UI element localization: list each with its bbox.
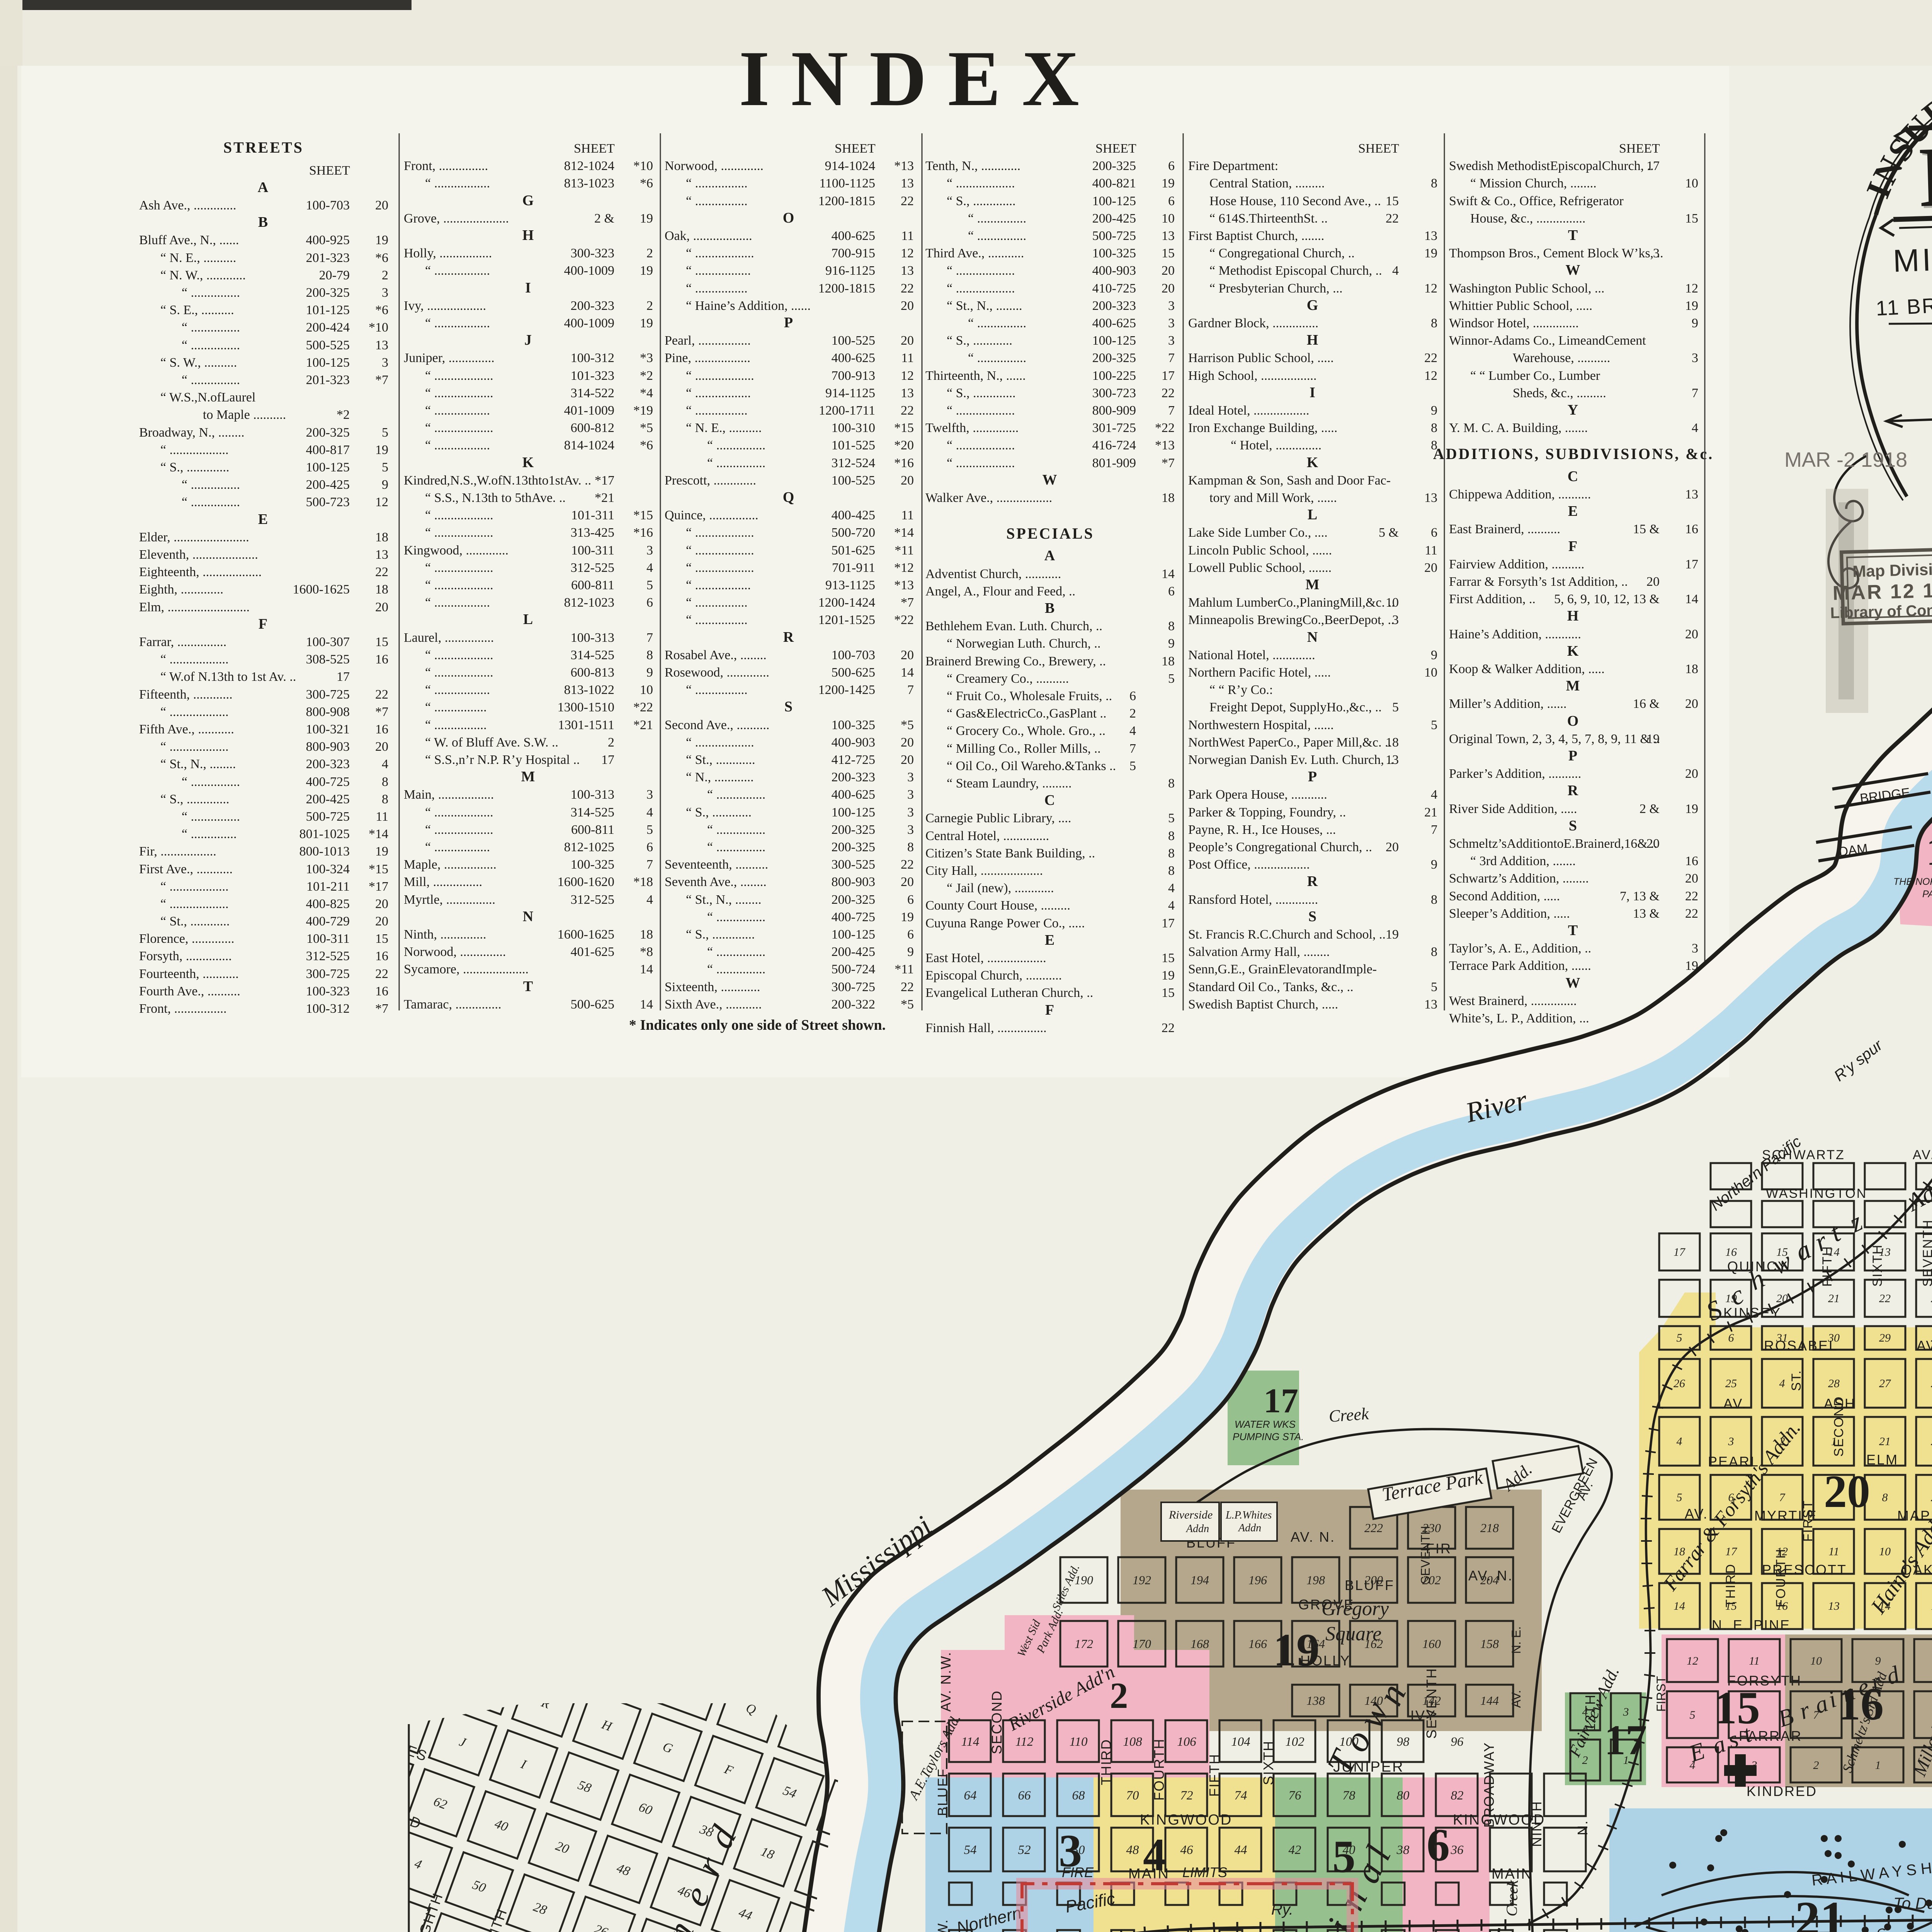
svg-text:13: 13 (1828, 1600, 1840, 1612)
svg-text:WASHINGTON: WASHINGTON (1766, 1186, 1867, 1201)
svg-text:21: 21 (1828, 1292, 1840, 1305)
svg-text:MAIN: MAIN (1492, 1866, 1533, 1882)
svg-text:“ S. E., ..........: “ S. E., .......... (160, 303, 234, 317)
svg-text:“ S., .............: “ S., ............. (160, 460, 230, 474)
svg-text:162: 162 (1364, 1637, 1383, 1651)
svg-text:Fourth Ave., ..........: Fourth Ave., .......... (139, 984, 240, 998)
svg-text:Mill, ...............: Mill, ............... (404, 875, 482, 889)
svg-text:202: 202 (1422, 1573, 1441, 1587)
svg-text:501-625: 501-625 (832, 543, 875, 558)
svg-text:15: 15 (1162, 951, 1175, 965)
svg-text:Thirteenth, N., ......: Thirteenth, N., ...... (925, 369, 1026, 383)
svg-text:300-323: 300-323 (571, 246, 614, 260)
svg-text:28: 28 (1828, 1377, 1840, 1390)
svg-text:100-321: 100-321 (306, 722, 350, 736)
svg-text:11: 11 (901, 508, 914, 522)
svg-text:160: 160 (1422, 1637, 1441, 1651)
svg-text:100-325: 100-325 (571, 857, 614, 872)
svg-text:17: 17 (1685, 557, 1698, 571)
svg-text:13: 13 (901, 264, 914, 278)
svg-text:FIFTH: FIFTH (1206, 1753, 1222, 1797)
svg-text:400-825: 400-825 (306, 897, 350, 911)
svg-text:4: 4 (646, 561, 653, 575)
svg-text:22: 22 (901, 980, 914, 994)
svg-text:SECOND: SECOND (989, 1690, 1005, 1754)
svg-text:“ ..................: “ .................. (425, 369, 493, 383)
svg-text:82: 82 (1451, 1789, 1464, 1803)
svg-text:*7: *7 (1162, 456, 1175, 470)
svg-text:I: I (1310, 384, 1316, 401)
svg-text:*18: *18 (633, 875, 653, 889)
svg-text:THIRD: THIRD (1098, 1739, 1114, 1785)
svg-text:“ ...............: “ ............... (182, 286, 240, 300)
svg-text:100-125: 100-125 (1092, 194, 1136, 208)
svg-text:Parker & Topping, Foundry, ..: Parker & Topping, Foundry, .. (1188, 805, 1346, 820)
svg-text:914-1125: 914-1125 (825, 386, 875, 400)
svg-text:Second Addition, .....: Second Addition, ..... (1449, 889, 1560, 903)
svg-text:200-323: 200-323 (571, 299, 614, 313)
svg-text:SIXTH: SIXTH (1870, 1244, 1885, 1287)
svg-text:112: 112 (1015, 1735, 1033, 1749)
svg-text:SHEET: SHEET (1095, 141, 1136, 156)
svg-text:Hose House, 110 Second Ave., .: Hose House, 110 Second Ave., .. (1209, 194, 1381, 208)
svg-text:400-725: 400-725 (832, 910, 875, 924)
svg-text:204: 204 (1480, 1573, 1499, 1587)
svg-text:5: 5 (1168, 672, 1175, 686)
svg-text:7, 13 &: 7, 13 & (1620, 889, 1660, 903)
svg-text:4: 4 (646, 805, 653, 820)
svg-text:“ ...............: “ ............... (182, 478, 240, 492)
svg-text:313-425: 313-425 (571, 526, 614, 540)
svg-text:“ ................: “ ................ (686, 403, 748, 418)
svg-text:SHEET: SHEET (835, 141, 876, 156)
svg-text:B: B (258, 214, 269, 230)
svg-text:1301-1511: 1301-1511 (558, 718, 614, 732)
svg-text:15: 15 (375, 635, 388, 649)
svg-text:NINTH: NINTH (1529, 1801, 1544, 1847)
svg-text:Sleeper’s Addition, .....: Sleeper’s Addition, ..... (1449, 906, 1570, 921)
svg-text:4: 4 (1168, 898, 1175, 913)
svg-text:Terrace Park Addition, ......: Terrace Park Addition, ...... (1449, 959, 1591, 973)
svg-text:“ ................: “ ................ (425, 718, 487, 732)
svg-text:15: 15 (1162, 986, 1175, 1000)
svg-text:3: 3 (907, 787, 914, 802)
svg-text:AV. N.W.: AV. N.W. (938, 1651, 954, 1712)
svg-text:Kingwood, .............: Kingwood, ............. (404, 543, 509, 558)
svg-text:“ ..................: “ .................. (947, 281, 1015, 296)
svg-text:12: 12 (901, 246, 914, 260)
svg-text:WATER WKS: WATER WKS (1235, 1418, 1296, 1430)
svg-text:“ W.S.,N.ofLaurel: “ W.S.,N.ofLaurel (160, 390, 255, 405)
svg-text:1600-1620: 1600-1620 (558, 875, 614, 889)
svg-text:Eleventh, ....................: Eleventh, .................... (139, 548, 258, 562)
svg-text:Central Station, .........: Central Station, ......... (1209, 176, 1325, 190)
svg-text:R: R (1568, 782, 1579, 799)
svg-text:Prescott, .............: Prescott, ............. (665, 473, 756, 488)
svg-text:106: 106 (1177, 1735, 1196, 1749)
svg-text:5: 5 (1332, 1831, 1355, 1882)
svg-text:200-425: 200-425 (306, 792, 350, 806)
svg-text:813-1022: 813-1022 (564, 683, 614, 697)
svg-text:10: 10 (640, 683, 653, 697)
svg-text:813-1023: 813-1023 (564, 176, 614, 190)
svg-text:*3: *3 (640, 351, 653, 365)
svg-text:“ S.S., N.13th to 5thAve. ..: “ S.S., N.13th to 5thAve. .. (425, 491, 566, 505)
svg-text:SHEET: SHEET (1358, 141, 1399, 156)
svg-text:“ Gas&ElectricCo.,GasPlant ..: “ Gas&ElectricCo.,GasPlant .. (947, 706, 1107, 721)
svg-text:100-324: 100-324 (306, 862, 350, 876)
svg-text:ELM: ELM (1866, 1452, 1898, 1468)
svg-text:“ ..................: “ .................. (686, 561, 754, 575)
svg-text:3: 3 (1392, 613, 1399, 627)
svg-text:7: 7 (1168, 351, 1175, 365)
svg-text:Lake Side Lumber Co., ....: Lake Side Lumber Co., .... (1188, 526, 1328, 540)
svg-text:“ ..................: “ .................. (425, 648, 493, 662)
svg-text:Sheds, &c., .........: Sheds, &c., ......... (1513, 386, 1606, 400)
svg-text:9: 9 (1431, 857, 1437, 872)
svg-text:230: 230 (1422, 1521, 1441, 1535)
svg-text:500-625: 500-625 (571, 997, 614, 1012)
svg-text:218: 218 (1480, 1521, 1499, 1535)
svg-text:3: 3 (382, 355, 388, 370)
svg-text:200-325: 200-325 (306, 286, 350, 300)
svg-text:21: 21 (1879, 1435, 1891, 1448)
svg-text:9: 9 (646, 665, 653, 680)
svg-text:100-311: 100-311 (571, 543, 614, 558)
svg-text:400-729: 400-729 (306, 914, 350, 929)
svg-text:3: 3 (1059, 1825, 1082, 1876)
svg-text:22: 22 (901, 281, 914, 296)
svg-text:“ ...............: “ ............... (707, 787, 765, 802)
svg-text:101-525: 101-525 (832, 438, 875, 452)
svg-text:*6: *6 (640, 176, 653, 190)
svg-text:27: 27 (1879, 1377, 1891, 1390)
svg-text:9: 9 (1168, 636, 1175, 651)
svg-text:ADDITIONS, SUBDIVISIONS, &c.: ADDITIONS, SUBDIVISIONS, &c. (1433, 445, 1714, 463)
svg-text:166: 166 (1248, 1637, 1267, 1651)
svg-text:138: 138 (1306, 1694, 1325, 1708)
svg-text:2: 2 (1813, 1759, 1819, 1772)
svg-text:500-525: 500-525 (306, 338, 350, 352)
svg-text:46: 46 (1180, 1843, 1194, 1857)
svg-text:“ ..................: “ .................. (947, 456, 1015, 470)
svg-text:500-723: 500-723 (306, 495, 350, 509)
svg-text:*7: *7 (375, 705, 388, 719)
svg-text:100-125: 100-125 (832, 927, 875, 942)
svg-text:20: 20 (375, 600, 388, 614)
svg-text:20: 20 (375, 198, 388, 213)
svg-text:8: 8 (1168, 619, 1175, 633)
svg-text:54: 54 (964, 1843, 977, 1857)
svg-text:19: 19 (375, 844, 388, 859)
svg-text:5: 5 (382, 425, 388, 440)
svg-text:AV. N.: AV. N. (1291, 1529, 1335, 1545)
svg-text:200-325: 200-325 (1092, 351, 1136, 365)
svg-text:15: 15 (1714, 1682, 1760, 1733)
svg-text:“ S., .............: “ S., ............. (686, 927, 755, 942)
svg-text:Florence, .............: Florence, ............. (139, 932, 234, 946)
svg-text:St. Francis R.C.Church and Sch: St. Francis R.C.Church and School, .. (1188, 927, 1386, 942)
svg-text:“ S., ............: “ S., ............ (947, 333, 1012, 348)
svg-text:8: 8 (1168, 846, 1175, 861)
svg-text:Addn: Addn (1185, 1523, 1209, 1535)
svg-text:Broadway, N., ........: Broadway, N., ........ (139, 425, 245, 440)
svg-text:3: 3 (646, 787, 653, 802)
svg-text:O: O (783, 210, 796, 226)
svg-text:People’s Congregational Church: People’s Congregational Church, .. (1188, 840, 1372, 854)
svg-text:12: 12 (1685, 281, 1698, 296)
svg-text:10: 10 (1685, 176, 1698, 190)
svg-text:144: 144 (1480, 1694, 1499, 1708)
svg-text:16: 16 (1685, 522, 1698, 536)
svg-text:M: M (521, 769, 536, 785)
svg-text:400-1009: 400-1009 (564, 316, 614, 330)
svg-text:BROADWAY: BROADWAY (1481, 1742, 1497, 1828)
svg-text:“ ..................: “ .................. (686, 246, 754, 260)
svg-text:96: 96 (1451, 1735, 1464, 1749)
svg-text:200-325: 200-325 (832, 840, 875, 854)
svg-text:12: 12 (901, 369, 914, 383)
svg-text:Central Hotel, ..............: Central Hotel, .............. (925, 829, 1049, 843)
svg-text:“ ...............: “ ............... (182, 320, 240, 335)
svg-text:22: 22 (901, 403, 914, 418)
svg-text:Q: Q (783, 489, 796, 505)
svg-text:200-425: 200-425 (306, 478, 350, 492)
svg-text:Park Opera House, ...........: Park Opera House, ........... (1188, 787, 1327, 802)
svg-text:ST.: ST. (1789, 1370, 1804, 1391)
svg-text:300-723: 300-723 (1092, 386, 1136, 400)
svg-text:Ivy, ..................: Ivy, .................. (404, 299, 486, 313)
svg-text:“ ..................: “ .................. (425, 421, 493, 435)
svg-text:“ ..................: “ .................. (160, 705, 229, 719)
svg-text:PUMPING STA.: PUMPING STA. (1233, 1431, 1304, 1442)
svg-text:20: 20 (901, 333, 914, 348)
svg-text:5: 5 (646, 578, 653, 592)
svg-text:18: 18 (1926, 828, 1932, 874)
svg-text:“ ...............: “ ............... (968, 211, 1026, 226)
svg-text:SIXTH: SIXTH (1260, 1740, 1276, 1785)
svg-text:22: 22 (1162, 1021, 1175, 1035)
svg-text:P: P (1308, 769, 1318, 785)
svg-text:100-225: 100-225 (1092, 369, 1136, 383)
svg-text:20: 20 (1685, 627, 1698, 641)
svg-text:8: 8 (1882, 1491, 1888, 1504)
svg-text:“ ..................: “ .................. (425, 578, 493, 592)
svg-text:“ ..............: “ .............. (182, 827, 237, 841)
svg-text:5: 5 (1431, 718, 1437, 732)
svg-text:170: 170 (1133, 1637, 1151, 1651)
svg-text:201-323: 201-323 (306, 251, 350, 265)
svg-text:52: 52 (1018, 1843, 1031, 1857)
svg-text:8: 8 (1431, 945, 1437, 959)
svg-text:Finnish Hall, ...............: Finnish Hall, ............... (925, 1021, 1047, 1035)
svg-text:*16: *16 (894, 456, 914, 470)
svg-text:17: 17 (1646, 159, 1660, 173)
svg-text:“ ...............: “ ............... (707, 945, 765, 959)
svg-text:168: 168 (1190, 1637, 1209, 1651)
svg-text:*13: *13 (894, 159, 914, 173)
svg-text:White’s, L. P., Addition, ...: White’s, L. P., Addition, ... (1449, 1011, 1589, 1026)
svg-text:Elm, .........................: Elm, ......................... (139, 600, 250, 614)
svg-text:Creek: Creek (1328, 1404, 1370, 1426)
svg-text:500-725: 500-725 (306, 810, 350, 824)
svg-text:13: 13 (1386, 753, 1399, 767)
svg-text:“ Presbyterian Church, ...: “ Presbyterian Church, ... (1209, 281, 1343, 296)
svg-text:308-525: 308-525 (306, 652, 350, 667)
svg-text:200-325: 200-325 (306, 425, 350, 440)
svg-text:River Side Addition, .....: River Side Addition, ..... (1449, 802, 1577, 816)
svg-text:“ ...............: “ ............... (707, 840, 765, 854)
svg-text:Post Office, .................: Post Office, ................. (1188, 857, 1310, 872)
svg-text:800-903: 800-903 (832, 875, 875, 889)
svg-text:“ ...............: “ ............... (182, 338, 240, 352)
svg-text:*4: *4 (640, 386, 653, 400)
svg-text:913-1125: 913-1125 (825, 578, 875, 592)
svg-text:“ ..................: “ .................. (686, 543, 754, 558)
svg-text:19: 19 (640, 316, 653, 330)
svg-text:10: 10 (1386, 595, 1399, 610)
svg-text:801-909: 801-909 (1092, 456, 1136, 470)
svg-text:4: 4 (1168, 881, 1175, 895)
svg-text:Library of Congress: Library of Congress (1830, 601, 1932, 622)
svg-text:“ St., N., ........: “ St., N., ........ (947, 299, 1022, 313)
svg-text:Walker Ave., .................: Walker Ave., ................. (925, 491, 1052, 505)
svg-text:“ ..................: “ .................. (160, 879, 229, 894)
svg-text:*2: *2 (640, 369, 653, 383)
svg-text:13: 13 (901, 386, 914, 400)
svg-text:“ ...............: “ ............... (707, 456, 765, 470)
svg-text:Map Division: Map Division (1852, 560, 1932, 581)
svg-text:H: H (522, 227, 535, 243)
svg-text:Maple, ................: Maple, ................ (404, 857, 497, 872)
svg-text:FIRST: FIRST (1654, 1676, 1668, 1712)
svg-text:“ Norwegian Luth. Church, ..: “ Norwegian Luth. Church, .. (947, 636, 1100, 651)
svg-text:100-125: 100-125 (832, 805, 875, 820)
svg-text:8: 8 (382, 792, 388, 806)
svg-text:Schmeltz’sAdditiontoE.Brainerd: Schmeltz’sAdditiontoE.Brainerd,16& .. (1449, 837, 1657, 851)
svg-text:12: 12 (1424, 369, 1437, 383)
svg-text:20: 20 (901, 648, 914, 662)
svg-text:*6: *6 (375, 303, 388, 317)
svg-text:9: 9 (907, 945, 914, 959)
svg-text:*12: *12 (894, 561, 914, 575)
svg-text:22: 22 (375, 687, 388, 702)
svg-text:*14: *14 (369, 827, 388, 841)
svg-text:11: 11 (1828, 1545, 1839, 1558)
svg-text:8: 8 (1431, 421, 1437, 435)
svg-text:26: 26 (1673, 1377, 1685, 1390)
svg-text:7: 7 (1692, 386, 1698, 400)
svg-text:“ ..................: “ .................. (425, 526, 493, 540)
svg-text:Front, ...............: Front, ............... (404, 159, 488, 173)
svg-text:FOURTH: FOURTH (1774, 1548, 1788, 1607)
svg-text:PAPER MILL: PAPER MILL (1922, 889, 1932, 900)
svg-text:2: 2 (1129, 706, 1136, 721)
svg-text:KINDRED: KINDRED (1747, 1783, 1817, 1799)
svg-text:County Court House, .........: County Court House, ......... (925, 898, 1070, 913)
svg-text:E: E (1568, 503, 1579, 519)
svg-text:20: 20 (1685, 871, 1698, 886)
svg-text:SPECIALS: SPECIALS (1006, 525, 1094, 542)
svg-text:Episcopal Church, ...........: Episcopal Church, ........... (925, 968, 1062, 983)
svg-text:36: 36 (1451, 1843, 1464, 1857)
svg-text:C: C (1044, 792, 1056, 808)
svg-text:222: 222 (1364, 1521, 1383, 1535)
svg-text:101-311: 101-311 (571, 508, 614, 522)
svg-text:Schwartz’s Addition, ........: Schwartz’s Addition, ........ (1449, 871, 1589, 886)
svg-text:9: 9 (1431, 403, 1437, 418)
svg-text:Fourteenth, ...........: Fourteenth, ........... (139, 967, 239, 981)
svg-text:18: 18 (375, 530, 388, 544)
svg-text:“ ..................: “ .................. (160, 652, 229, 667)
svg-text:House, &c., ...............: House, &c., ............... (1470, 211, 1585, 226)
svg-text:BLUFF: BLUFF (935, 1768, 951, 1816)
svg-text:1200-1424: 1200-1424 (818, 595, 875, 610)
svg-text:*10: *10 (633, 159, 653, 173)
svg-text:“ St., ............: “ St., ............ (160, 914, 230, 929)
svg-text:Main, .................: Main, ................. (404, 787, 494, 802)
svg-text:“ Congregational Church, ..: “ Congregational Church, .. (1209, 246, 1355, 260)
svg-text:17: 17 (1162, 916, 1175, 930)
svg-text:“ ..................: “ .................. (686, 526, 754, 540)
svg-text:18: 18 (1386, 735, 1399, 750)
svg-text:1200-1711: 1200-1711 (819, 403, 875, 418)
svg-text:“ S., .............: “ S., ............. (947, 386, 1016, 400)
svg-text:500-725: 500-725 (1092, 229, 1136, 243)
svg-text:5: 5 (1168, 811, 1175, 825)
svg-text:A: A (1044, 548, 1056, 564)
svg-text:“ N. E., ..........: “ N. E., .......... (160, 251, 236, 265)
svg-text:F: F (259, 616, 269, 632)
svg-text:“ “ R’y Co.:: “ “ R’y Co.: (1209, 683, 1273, 697)
svg-text:First Baptist Church, .......: First Baptist Church, ....... (1188, 229, 1324, 243)
svg-text:3: 3 (907, 770, 914, 784)
svg-text:6: 6 (1427, 1819, 1450, 1871)
svg-text:6: 6 (646, 840, 653, 854)
svg-text:“ ...............: “ ............... (968, 229, 1026, 243)
svg-text:SEVENTH: SEVENTH (1920, 1219, 1932, 1287)
svg-text:916-1125: 916-1125 (825, 264, 875, 278)
svg-text:3: 3 (646, 543, 653, 558)
svg-text:Fifteenth, ............: Fifteenth, ............ (139, 687, 233, 702)
svg-text:15: 15 (1162, 246, 1175, 260)
svg-text:14: 14 (640, 962, 653, 976)
svg-text:416-724: 416-724 (1092, 438, 1136, 452)
svg-text:Elder, .......................: Elder, ....................... (139, 530, 249, 544)
svg-text:301-725: 301-725 (1092, 421, 1136, 435)
svg-text:“ Haine’s Addition, ......: “ Haine’s Addition, ...... (686, 299, 811, 313)
svg-text:J: J (524, 332, 533, 348)
svg-text:“ St., N., ........: “ St., N., ........ (160, 757, 236, 771)
svg-text:194: 194 (1190, 1573, 1209, 1587)
svg-text:SEVENTH: SEVENTH (1423, 1930, 1439, 1932)
svg-text:Fairview Addition, ..........: Fairview Addition, .......... (1449, 557, 1584, 571)
svg-text:10: 10 (1424, 665, 1437, 680)
svg-text:Whittier Public School, .....: Whittier Public School, ..... (1449, 299, 1592, 313)
svg-text:314-522: 314-522 (571, 386, 614, 400)
svg-text:Myrtle, ...............: Myrtle, ............... (404, 893, 495, 907)
svg-text:100-325: 100-325 (1092, 246, 1136, 260)
svg-text:F: F (1568, 538, 1578, 554)
svg-text:1: 1 (1875, 1759, 1881, 1772)
svg-text:Sixteenth, ............: Sixteenth, ............ (665, 980, 760, 994)
svg-text:L: L (523, 611, 534, 628)
svg-text:West Brainerd, ..............: West Brainerd, .............. (1449, 994, 1577, 1008)
svg-text:19: 19 (1685, 802, 1698, 816)
svg-text:6: 6 (646, 595, 653, 610)
svg-text:K: K (522, 454, 535, 471)
svg-text:“ .................: “ ................. (425, 316, 490, 330)
